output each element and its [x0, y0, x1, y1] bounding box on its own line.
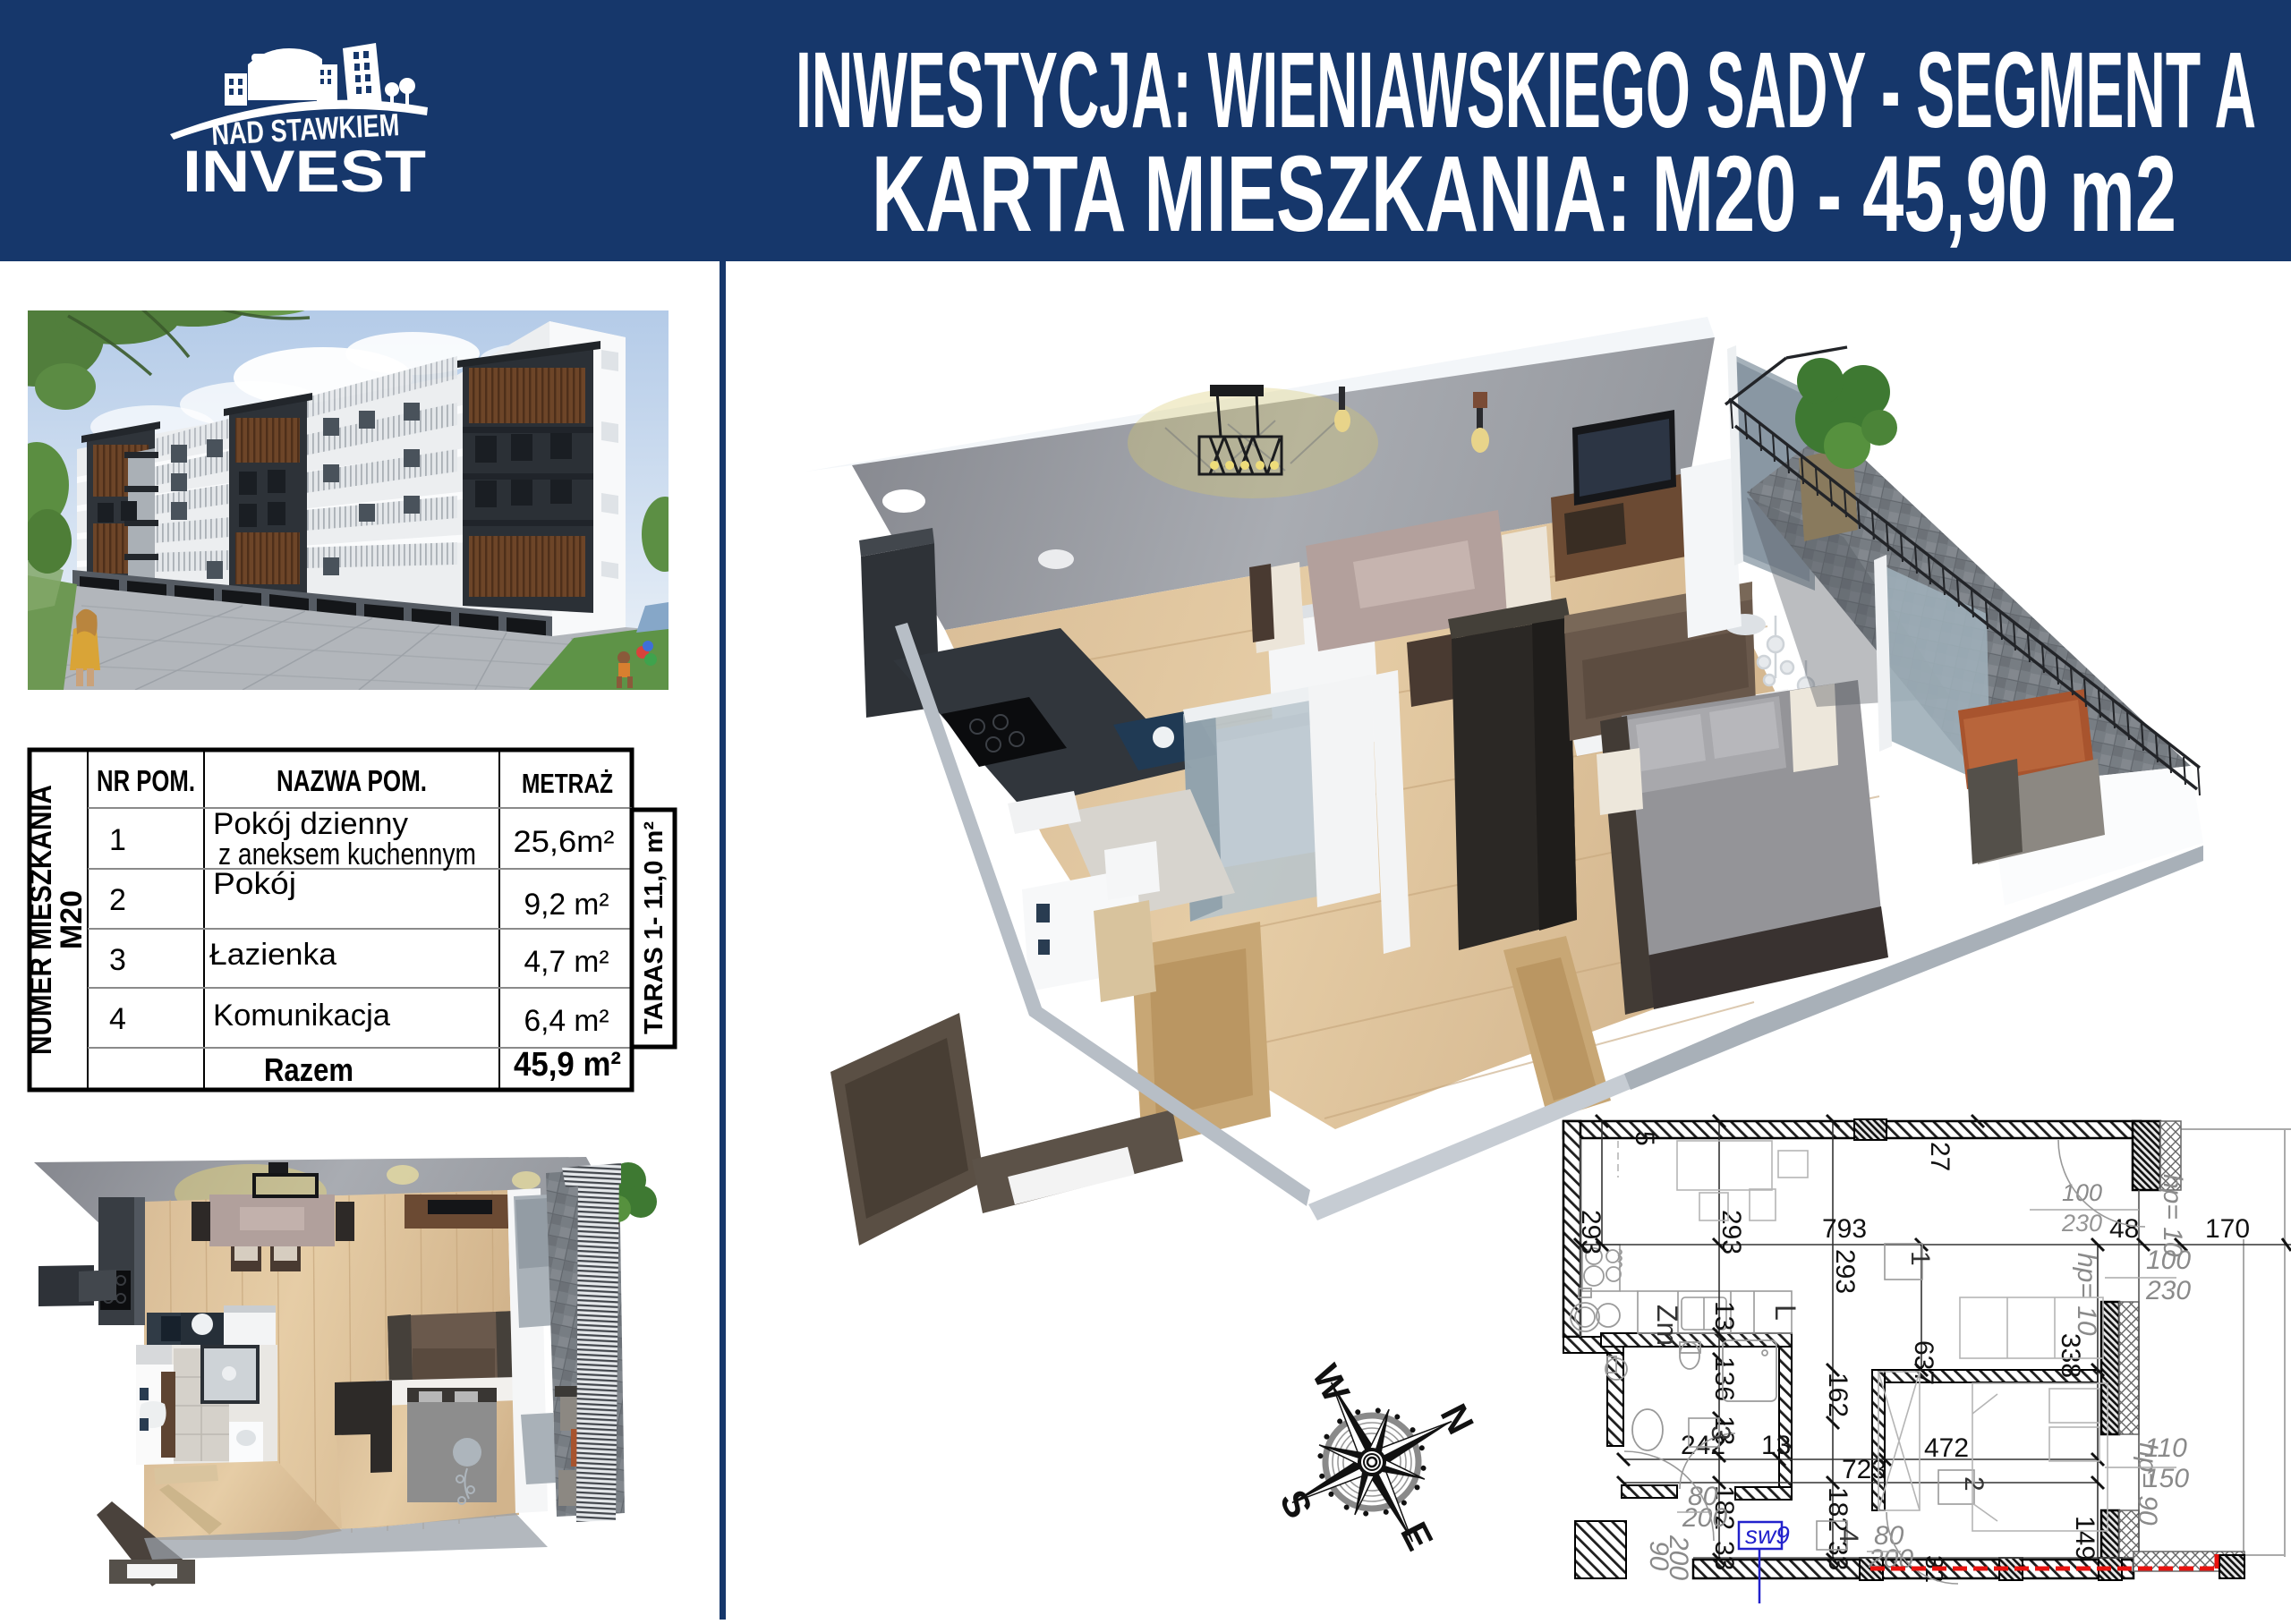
svg-text:L: L [1769, 1305, 1801, 1321]
svg-text:METRAŻ: METRAŻ [522, 768, 613, 799]
svg-text:M20: M20 [55, 890, 89, 949]
svg-text:110: 110 [2144, 1433, 2187, 1463]
svg-text:hp= 10: hp= 10 [2158, 1174, 2187, 1257]
svg-text:hp= 10: hp= 10 [2072, 1253, 2101, 1336]
svg-text:230: 230 [2061, 1210, 2102, 1237]
svg-text:3: 3 [109, 943, 126, 977]
svg-text:13: 13 [1709, 1301, 1739, 1331]
svg-text:4,7 m²: 4,7 m² [524, 945, 609, 979]
svg-text:162: 162 [1823, 1373, 1852, 1417]
svg-text:4: 4 [1834, 1528, 1863, 1543]
svg-text:27: 27 [1925, 1142, 1955, 1171]
svg-text:136: 136 [1709, 1356, 1739, 1401]
svg-text:100: 100 [2062, 1179, 2102, 1206]
svg-text:2: 2 [109, 883, 126, 917]
svg-text:TARAS 1- 11,0 m²: TARAS 1- 11,0 m² [640, 821, 669, 1034]
svg-text:637: 637 [1909, 1340, 1938, 1385]
svg-text:472: 472 [1924, 1433, 1969, 1463]
svg-text:W: W [1305, 1357, 1358, 1408]
svg-text:338: 338 [2056, 1333, 2085, 1378]
svg-text:Zm: Zm [1651, 1305, 1683, 1346]
svg-text:1: 1 [109, 823, 126, 857]
svg-text:25,6m²: 25,6m² [514, 825, 615, 859]
svg-text:170: 170 [2205, 1214, 2250, 1244]
svg-text:Pokój dzienny: Pokój dzienny [213, 807, 408, 841]
svg-text:N: N [1433, 1398, 1483, 1441]
svg-text:2: 2 [1959, 1476, 1989, 1492]
svg-text:9,2 m²: 9,2 m² [524, 888, 609, 922]
svg-text:1: 1 [1905, 1251, 1935, 1266]
svg-text:33: 33 [1709, 1541, 1739, 1570]
svg-text:100: 100 [2146, 1246, 2191, 1275]
svg-text:Łazienka: Łazienka [209, 938, 336, 972]
svg-text:3: 3 [1706, 1425, 1735, 1441]
svg-text:NUMER MIESZKANIA: NUMER MIESZKANIA [24, 785, 58, 1055]
svg-text:200: 200 [1664, 1535, 1693, 1580]
svg-text:48: 48 [2109, 1214, 2139, 1244]
svg-text:KARTA MIESZKANIA: M20 - 45,90: KARTA MIESZKANIA: M20 - 45,90 m2 [872, 132, 2176, 254]
svg-text:NAZWA POM.: NAZWA POM. [277, 764, 427, 797]
svg-text:NR POM.: NR POM. [97, 764, 195, 797]
svg-text:13: 13 [1761, 1431, 1791, 1460]
svg-text:6,4 m²: 6,4 m² [524, 1004, 609, 1038]
svg-text:Komunikacja: Komunikacja [213, 999, 390, 1033]
svg-text:293: 293 [1830, 1249, 1860, 1294]
svg-text:793: 793 [1822, 1214, 1867, 1244]
svg-text:230: 230 [2145, 1276, 2191, 1305]
svg-text:Razem: Razem [264, 1051, 353, 1088]
svg-text:4: 4 [109, 1002, 126, 1036]
svg-text:149: 149 [2070, 1516, 2099, 1560]
svg-text:293: 293 [1716, 1210, 1746, 1254]
svg-text:45,9 m²: 45,9 m² [514, 1046, 621, 1084]
svg-text:293: 293 [1576, 1210, 1605, 1254]
svg-text:33: 33 [1823, 1541, 1852, 1570]
svg-text:182: 182 [1823, 1487, 1852, 1532]
svg-text:INVEST: INVEST [183, 138, 426, 204]
svg-text:723: 723 [1842, 1455, 1886, 1484]
svg-text:150: 150 [2144, 1464, 2189, 1493]
svg-text:5: 5 [1630, 1131, 1659, 1146]
svg-text:200: 200 [1682, 1503, 1727, 1533]
svg-text:Pokój: Pokój [213, 867, 296, 901]
svg-text:sw9: sw9 [1745, 1521, 1790, 1549]
svg-text:S: S [1272, 1484, 1321, 1525]
